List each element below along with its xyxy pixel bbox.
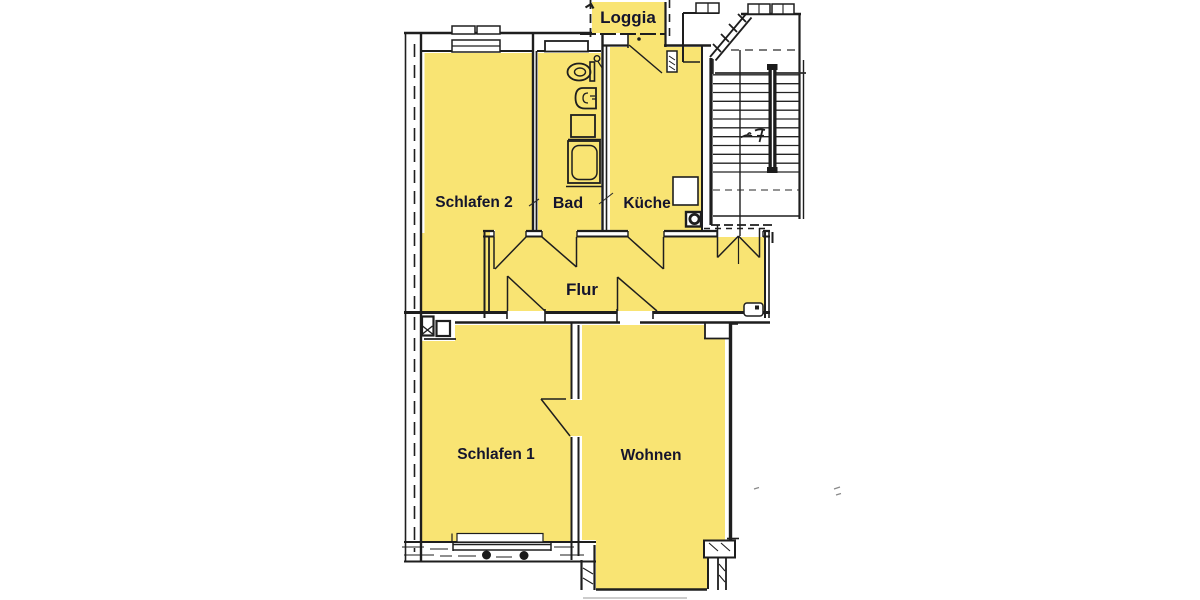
svg-text:Flur: Flur xyxy=(566,280,598,299)
svg-text:Schlafen 1: Schlafen 1 xyxy=(457,446,535,463)
svg-text:Küche: Küche xyxy=(623,195,671,212)
svg-text:Loggia: Loggia xyxy=(600,8,656,27)
svg-text:Schlafen 2: Schlafen 2 xyxy=(435,194,513,211)
svg-text:Wohnen: Wohnen xyxy=(621,447,682,464)
svg-text:Bad: Bad xyxy=(553,195,583,212)
